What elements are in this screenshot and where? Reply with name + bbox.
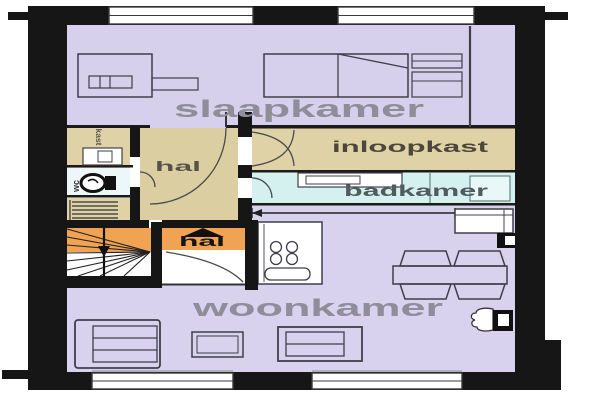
wall-stub-bottom-right <box>545 340 561 390</box>
floorplan-svg: slaapkamer woonkamer hal inloopkast badk… <box>0 0 600 400</box>
wall-left <box>28 6 67 390</box>
door-gap-badkamer <box>238 178 252 198</box>
window-bottom-right <box>312 371 462 389</box>
label-inloopkast: inloopkast <box>332 139 489 156</box>
label-entree-hal: hal <box>179 234 225 249</box>
entry-landing <box>162 250 245 285</box>
window-bottom-left <box>92 371 233 389</box>
kitchen-unit <box>258 222 322 284</box>
toilet-icon <box>81 175 116 192</box>
label-badkamer: badkamer <box>344 183 488 200</box>
window-top-left <box>109 7 253 24</box>
label-woonkamer: woonkamer <box>191 295 443 322</box>
label-hal: hal <box>155 158 201 174</box>
floorplan-image: slaapkamer woonkamer hal inloopkast badk… <box>0 0 600 400</box>
staircase <box>67 222 151 276</box>
wall-stub-top-right <box>545 12 568 20</box>
label-slaapkamer: slaapkamer <box>174 96 424 123</box>
label-kast: kast <box>94 128 104 145</box>
wall-stub-bottom-left <box>2 370 28 379</box>
kitchen-cabinet <box>258 222 322 284</box>
door-gap-inloopkast <box>238 137 252 165</box>
wall-stub-top-left <box>8 12 28 20</box>
window-top-right <box>338 7 474 24</box>
door-gap-wc <box>130 157 140 187</box>
wall-right <box>515 6 545 390</box>
label-wc: wc <box>71 180 81 193</box>
fireplace <box>471 308 513 331</box>
threshold-line <box>162 284 245 286</box>
